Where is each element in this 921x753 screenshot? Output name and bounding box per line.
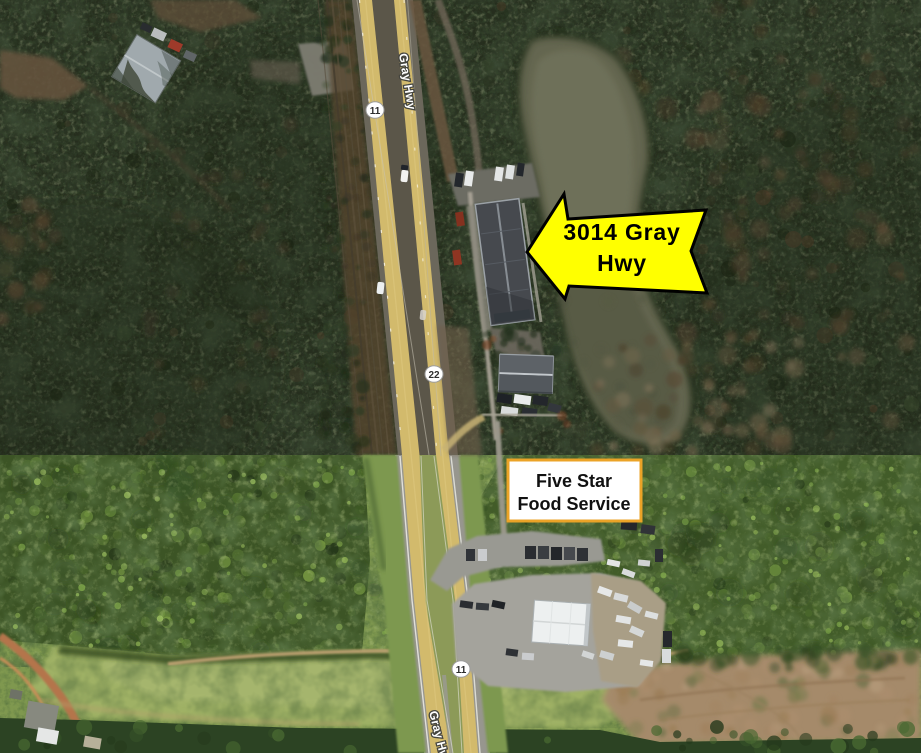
svg-text:Food Service: Food Service: [517, 494, 630, 514]
svg-text:Hwy: Hwy: [597, 250, 647, 276]
svg-text:22: 22: [428, 370, 440, 381]
svg-text:11: 11: [370, 106, 381, 117]
svg-text:3014 Gray: 3014 Gray: [563, 219, 680, 245]
svg-text:Five Star: Five Star: [536, 471, 612, 491]
svg-text:11: 11: [456, 665, 467, 676]
